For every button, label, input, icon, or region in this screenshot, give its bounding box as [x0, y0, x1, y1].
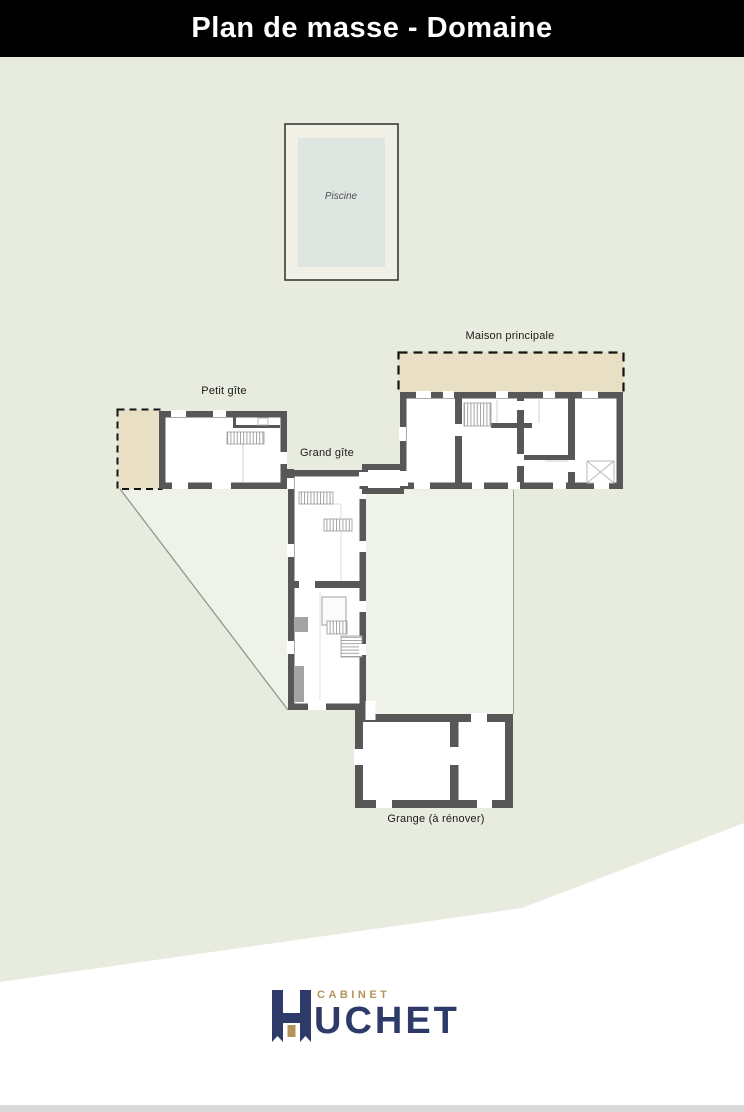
link-corridor [359, 464, 408, 494]
grand-gite-building [287, 470, 366, 710]
petit-gite-terrace [118, 410, 162, 490]
grand-gite-stairs-upper [299, 492, 333, 504]
grand-gite-stairs-low [327, 621, 347, 634]
label-piscine: Piscine [325, 191, 357, 202]
pool-water [298, 138, 385, 267]
petit-gite-building [118, 410, 295, 490]
title-bar: Plan de masse - Domaine [0, 0, 744, 57]
maison-interior [407, 399, 617, 483]
grange-room-right [459, 722, 506, 800]
page-title: Plan de masse - Domaine [191, 12, 552, 45]
maison-stairs [464, 403, 491, 426]
maison-principale-building [399, 353, 624, 490]
grange-room-left [363, 722, 450, 800]
pool [285, 124, 398, 280]
grand-gite-interior [295, 477, 360, 704]
petit-gite-stairs [227, 432, 264, 444]
label-maison-principale: Maison principale [466, 330, 555, 342]
label-petit-gite: Petit gîte [201, 385, 246, 397]
grange-building [354, 701, 513, 808]
brand-huchet-text: UCHET [314, 1002, 460, 1040]
bottom-strip [0, 1105, 744, 1112]
grand-gite-steps [341, 636, 362, 657]
page: Plan de masse - Domaine Piscine Maison p… [0, 0, 744, 1112]
label-grand-gite: Grand gîte [300, 447, 354, 459]
courtyard [366, 490, 513, 714]
maison-terrace [399, 353, 624, 394]
grand-gite-stairs-mid [324, 519, 352, 531]
label-grange: Grange (à rénover) [387, 813, 484, 825]
site-plan [0, 0, 744, 1112]
maison-shaft [587, 461, 614, 483]
brand-h-icon [272, 990, 311, 1042]
